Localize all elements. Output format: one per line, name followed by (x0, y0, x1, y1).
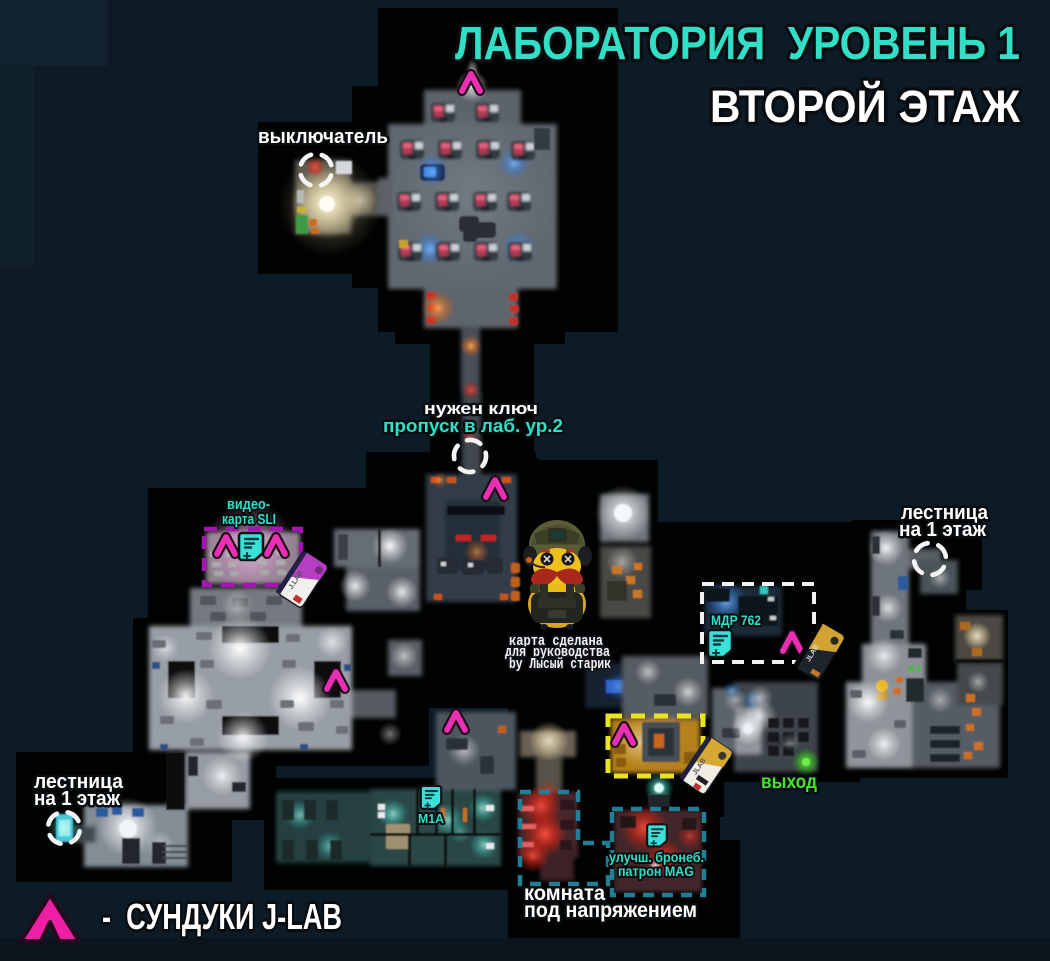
svg-text:- СУНДУКИ J-LAB: - СУНДУКИ J-LAB (102, 896, 342, 937)
svg-text:МДР 762: МДР 762 (711, 613, 761, 628)
svg-text:видео-: видео- (227, 497, 270, 513)
svg-text:выключатель: выключатель (258, 126, 388, 148)
svg-text:ВТОРОЙ ЭТАЖ: ВТОРОЙ ЭТАЖ (710, 81, 1020, 132)
svg-text:by Лысый старик: by Лысый старик (509, 656, 611, 673)
svg-text:на 1 этаж: на 1 этаж (34, 788, 121, 810)
svg-text:под напряжением: под напряжением (524, 899, 697, 922)
svg-text:M1A: M1A (418, 811, 445, 826)
svg-text:улучш. бронеб.: улучш. бронеб. (609, 850, 704, 865)
svg-text:на 1 этаж: на 1 этаж (899, 519, 987, 541)
svg-text:карта SLI: карта SLI (222, 512, 276, 528)
svg-text:патрон MAG: патрон MAG (618, 864, 694, 879)
svg-text:выход: выход (761, 772, 817, 793)
svg-text:ЛАБОРАТОРИЯ УРОВЕНЬ 1: ЛАБОРАТОРИЯ УРОВЕНЬ 1 (455, 17, 1020, 69)
svg-text:пропуск в лаб. ур.2: пропуск в лаб. ур.2 (383, 416, 563, 436)
